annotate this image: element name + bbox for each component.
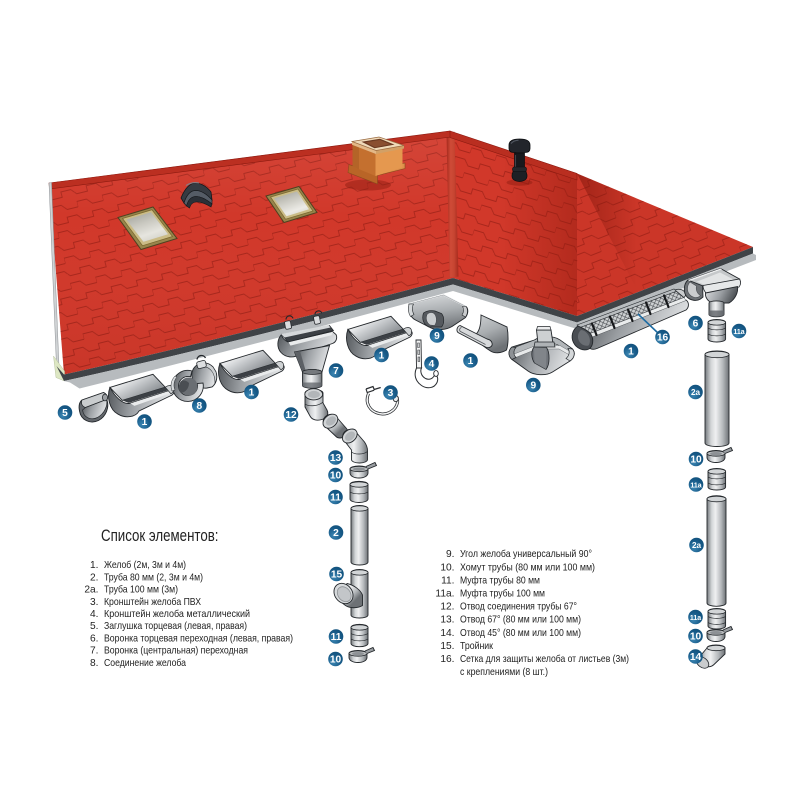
svg-text:10: 10 (690, 632, 702, 643)
svg-text:1: 1 (249, 388, 255, 399)
svg-text:Отвод 45° (80 мм или 100 мм): Отвод 45° (80 мм или 100 мм) (460, 628, 581, 639)
svg-text:11: 11 (331, 632, 342, 643)
svg-text:5.: 5. (90, 621, 99, 632)
svg-text:8.: 8. (90, 658, 99, 669)
svg-text:15: 15 (331, 570, 343, 581)
svg-text:1: 1 (142, 417, 148, 428)
svg-text:Труба 80 мм (2, 3м и 4м): Труба 80 мм (2, 3м и 4м) (104, 571, 203, 583)
svg-text:11: 11 (330, 493, 341, 504)
svg-text:11a: 11a (690, 615, 701, 622)
svg-text:Труба 100 мм (3м): Труба 100 мм (3м) (104, 584, 178, 596)
svg-text:16: 16 (657, 333, 669, 344)
svg-text:2.: 2. (90, 572, 99, 583)
svg-text:Отвод соединения трубы 67°: Отвод соединения трубы 67° (460, 601, 577, 613)
svg-text:3: 3 (388, 388, 394, 399)
svg-text:11а.: 11а. (435, 589, 454, 600)
svg-text:Хомут трубы (80 мм или 100 мм): Хомут трубы (80 мм или 100 мм) (460, 561, 595, 573)
svg-text:Муфта трубы 100 мм: Муфта трубы 100 мм (460, 588, 545, 600)
svg-text:10: 10 (330, 655, 342, 666)
svg-text:9: 9 (434, 331, 440, 342)
svg-text:16.: 16. (440, 654, 454, 665)
svg-text:11.: 11. (441, 575, 454, 586)
svg-text:14: 14 (690, 652, 702, 663)
svg-text:Кронштейн желоба металлический: Кронштейн желоба металлический (104, 608, 250, 620)
svg-text:9.: 9. (446, 549, 455, 560)
svg-text:12: 12 (285, 410, 297, 421)
svg-text:10.: 10. (440, 562, 454, 573)
svg-text:Заглушка торцевая (левая, прав: Заглушка торцевая (левая, правая) (104, 621, 247, 632)
svg-text:Отвод 67° (80 мм или 100 мм): Отвод 67° (80 мм или 100 мм) (460, 615, 581, 626)
svg-text:12.: 12. (440, 602, 454, 613)
svg-text:9: 9 (530, 381, 536, 392)
svg-text:14.: 14. (440, 628, 454, 639)
svg-text:6: 6 (693, 319, 699, 330)
svg-text:2a: 2a (691, 388, 701, 397)
svg-text:2a: 2a (692, 541, 702, 550)
svg-text:Тройник: Тройник (460, 641, 493, 652)
svg-text:11a: 11a (733, 329, 744, 336)
svg-text:Муфта трубы 80 мм: Муфта трубы 80 мм (460, 574, 540, 586)
svg-text:Кронштейн желоба ПВХ: Кронштейн желоба ПВХ (104, 596, 201, 608)
svg-text:1: 1 (628, 347, 634, 358)
svg-text:3.: 3. (90, 597, 99, 608)
svg-text:Сетка для защиты желоба от лис: Сетка для защиты желоба от листьев (3м) (460, 653, 629, 665)
svg-text:1: 1 (379, 351, 385, 362)
svg-text:2а.: 2а. (84, 585, 98, 596)
svg-text:1.: 1. (90, 560, 99, 571)
svg-text:10: 10 (330, 471, 342, 482)
svg-text:7: 7 (333, 366, 339, 377)
svg-text:Воронка (центральная) переходн: Воронка (центральная) переходная (104, 646, 248, 657)
svg-text:1: 1 (468, 356, 474, 367)
svg-text:5: 5 (62, 408, 68, 419)
svg-text:Воронка торцевая переходная (л: Воронка торцевая переходная (левая, прав… (104, 633, 293, 644)
svg-text:Угол желоба универсальный 90°: Угол желоба универсальный 90° (460, 548, 592, 560)
svg-text:7.: 7. (90, 646, 99, 657)
svg-text:15.: 15. (440, 641, 454, 652)
svg-text:4.: 4. (90, 609, 99, 620)
svg-text:Соединение желоба: Соединение желоба (104, 657, 186, 669)
svg-text:2: 2 (333, 528, 339, 539)
svg-text:13.: 13. (440, 615, 454, 626)
svg-text:13: 13 (330, 453, 342, 464)
svg-text:6.: 6. (90, 633, 99, 644)
svg-text:с креплениями (8 шт.): с креплениями (8 шт.) (460, 667, 548, 678)
svg-text:Список элементов:: Список элементов: (101, 527, 219, 545)
svg-text:Желоб (2м, 3м и 4м): Желоб (2м, 3м и 4м) (104, 559, 186, 571)
svg-text:10: 10 (690, 455, 702, 466)
svg-text:4: 4 (429, 359, 435, 370)
svg-text:8: 8 (196, 401, 202, 412)
svg-text:11a: 11a (690, 483, 701, 490)
